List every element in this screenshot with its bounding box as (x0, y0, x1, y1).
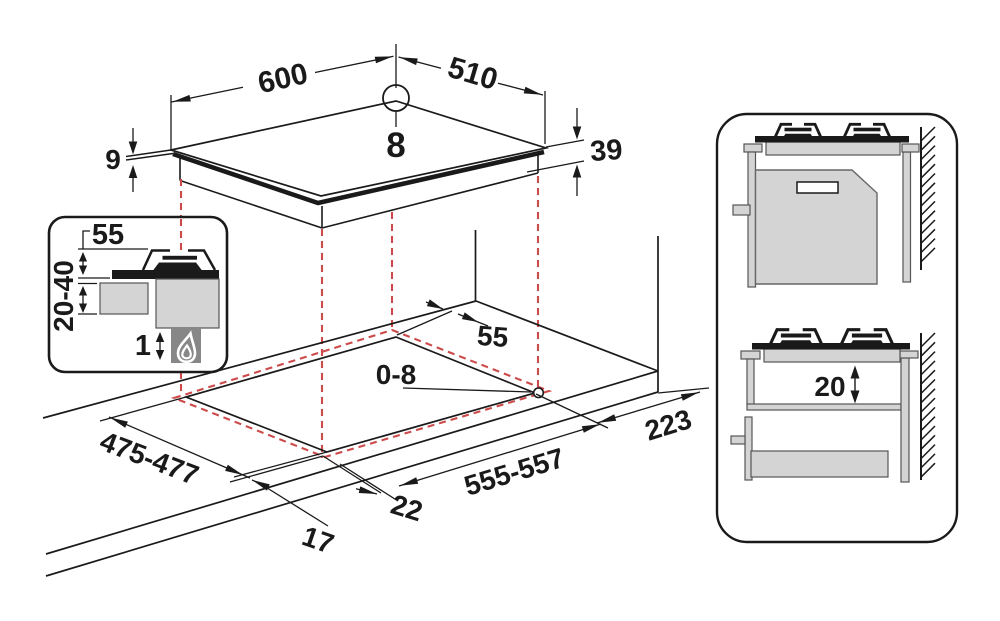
svg-text:55: 55 (476, 320, 509, 353)
svg-text:55: 55 (92, 219, 124, 251)
svg-text:0-8: 0-8 (376, 359, 416, 390)
svg-text:8: 8 (386, 126, 405, 165)
svg-text:1: 1 (135, 330, 151, 362)
svg-text:9: 9 (105, 144, 121, 175)
svg-text:20-40: 20-40 (48, 260, 79, 332)
svg-text:39: 39 (589, 134, 623, 168)
svg-text:20: 20 (814, 371, 845, 402)
